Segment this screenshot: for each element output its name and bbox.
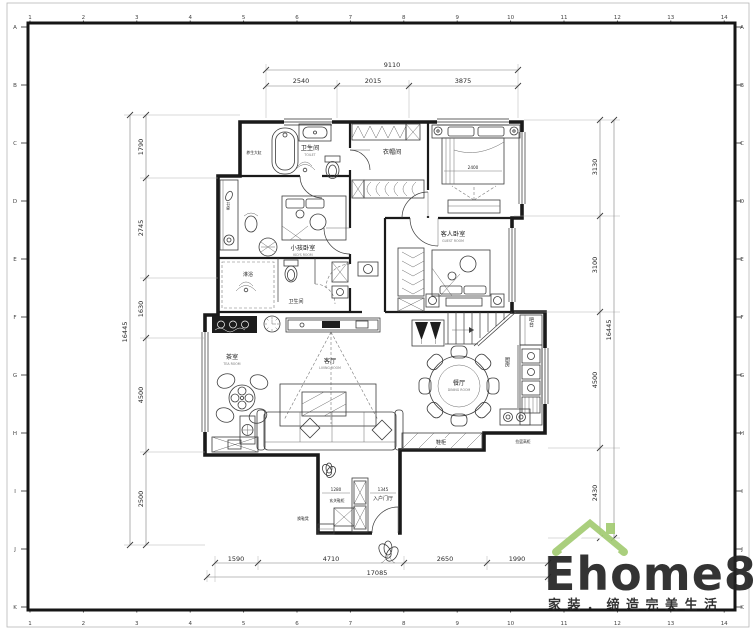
dim-label: 2540 bbox=[293, 77, 310, 85]
grid-col-label: 14 bbox=[721, 15, 728, 21]
annotation-entry-dim: 1345 bbox=[378, 487, 389, 492]
room-label-bar: 吧台 bbox=[528, 317, 534, 328]
window-living-left bbox=[201, 332, 209, 432]
grid-col-label: 4 bbox=[188, 621, 192, 627]
dim-label: 2430 bbox=[591, 485, 599, 502]
grid-row-label: G bbox=[740, 373, 744, 379]
grid-col-label: 5 bbox=[242, 15, 246, 21]
grid-row-label: J bbox=[13, 547, 16, 553]
grid-row-label: F bbox=[13, 315, 16, 321]
dim-label: 16445 bbox=[121, 322, 129, 343]
dim-label: 3130 bbox=[591, 159, 599, 176]
grid-col-label: 12 bbox=[614, 621, 621, 627]
grid-col-label: 13 bbox=[667, 621, 674, 627]
grid-col-label: 1 bbox=[28, 621, 32, 627]
grid-col-label: 9 bbox=[455, 621, 459, 627]
window-master-right bbox=[518, 132, 526, 204]
room-sublabel: LIVING ROOM bbox=[319, 366, 341, 370]
grid-col-label: 2 bbox=[82, 621, 86, 627]
room-label-dining-room: 餐厅 bbox=[453, 379, 465, 387]
room-label-tea-room: 茶室 bbox=[226, 353, 238, 361]
room-sublabel: GUEST ROOM bbox=[442, 239, 464, 243]
dim-label: 3875 bbox=[455, 77, 472, 85]
annotation-tall-cabinet: 拉篮高柜 bbox=[515, 439, 530, 444]
grid-col-label: 8 bbox=[402, 621, 406, 627]
grid-col-label: 9 bbox=[455, 15, 459, 21]
grid-row-label: H bbox=[740, 431, 744, 437]
grid-col-label: 7 bbox=[349, 15, 353, 21]
dim-label: 9110 bbox=[384, 61, 401, 69]
dim-label: 2015 bbox=[365, 77, 382, 85]
dim-label: 4500 bbox=[137, 387, 145, 404]
grid-col-label: 6 bbox=[295, 621, 299, 627]
dim-label: 16445 bbox=[605, 320, 613, 341]
grid-col-label: 4 bbox=[188, 15, 192, 21]
annotation-entry-dim: 1280 bbox=[331, 487, 342, 492]
room-label-kitchen: 厨房 bbox=[504, 357, 510, 368]
dim-label: 3100 bbox=[591, 257, 599, 274]
room-label-living-room: 客厅 bbox=[324, 357, 336, 365]
grid-col-label: 2 bbox=[82, 15, 86, 21]
room-label-shower: 淋浴 bbox=[243, 271, 253, 278]
grid-row-label: K bbox=[740, 605, 744, 611]
dim-label: 2650 bbox=[437, 555, 454, 563]
grid-row-label: C bbox=[740, 141, 744, 147]
grid-col-label: 14 bbox=[721, 621, 728, 627]
dim-label: 17085 bbox=[367, 569, 388, 577]
grid-row-label: C bbox=[13, 141, 17, 147]
annotation-health-tub: 养生大缸 bbox=[246, 150, 261, 155]
room-sublabel: DINING ROOM bbox=[448, 388, 471, 392]
annotation-bed-width: 2400 bbox=[468, 165, 479, 170]
dim-label: 1990 bbox=[509, 555, 526, 563]
annotation-shoe-bench: 换鞋凳 bbox=[297, 516, 309, 521]
dim-label: 4710 bbox=[323, 555, 340, 563]
dim-label: 2745 bbox=[137, 220, 145, 237]
room-label-guest-bedroom: 客人卧室 bbox=[441, 230, 466, 238]
room-sublabel: TEA ROOM bbox=[222, 362, 240, 366]
grid-col-label: 12 bbox=[614, 15, 621, 21]
grid-col-label: 3 bbox=[135, 15, 139, 21]
grid-col-label: 3 bbox=[135, 621, 139, 627]
logo-tagline-text: 家装．缔造完美生活 bbox=[548, 597, 724, 613]
room-label-kids-bedroom: 小孩卧室 bbox=[291, 244, 316, 252]
dim-label: 1590 bbox=[228, 555, 245, 563]
window-guest-right bbox=[508, 228, 516, 302]
grid-col-label: 6 bbox=[295, 15, 299, 21]
grid-col-label: 11 bbox=[561, 621, 568, 627]
room-sublabel: KID'S ROOM bbox=[293, 253, 313, 257]
grid-col-label: 11 bbox=[561, 15, 568, 21]
grid-row-label: A bbox=[740, 25, 744, 31]
grid-row-label: B bbox=[740, 83, 744, 89]
annotation-shoe-cabinet: 鞋柜 bbox=[436, 439, 446, 446]
room-label-entry: 入户门厅 bbox=[373, 495, 393, 502]
logo-brand-text: Ehome8 bbox=[544, 547, 756, 601]
grid-row-label: E bbox=[740, 257, 744, 263]
grid-row-label: K bbox=[13, 605, 17, 611]
grid-col-label: 5 bbox=[242, 621, 246, 627]
grid-row-label: F bbox=[740, 315, 743, 321]
dim-label: 1790 bbox=[137, 139, 145, 156]
grid-col-label: 10 bbox=[507, 621, 514, 627]
dim-label: 2500 bbox=[137, 491, 145, 508]
grid-row-label: D bbox=[13, 199, 17, 205]
room-label-bathroom-2: 卫生间 bbox=[288, 298, 303, 305]
annotation-desk: 书桌 bbox=[225, 202, 231, 211]
dim-label: 1630 bbox=[137, 301, 145, 318]
room-label-cloakroom: 衣帽间 bbox=[383, 148, 402, 156]
grid-row-label: G bbox=[13, 373, 17, 379]
annotation-entry-cabinet: 玄关鞋柜 bbox=[329, 498, 344, 503]
grid-row-label: A bbox=[13, 25, 17, 31]
grid-col-label: 13 bbox=[667, 15, 674, 21]
window-bath-top bbox=[284, 118, 332, 126]
grid-col-label: 8 bbox=[402, 15, 406, 21]
room-label-bathroom: 卫生间 bbox=[301, 144, 320, 152]
room-sublabel: TOILET bbox=[303, 153, 315, 157]
grid-row-label: B bbox=[13, 83, 17, 89]
grid-row-label: E bbox=[13, 257, 17, 263]
wall-clock bbox=[264, 316, 280, 332]
decor-cabinet bbox=[212, 316, 257, 333]
floor-plan-sheet: 11223344556677889910101111121213131414AA… bbox=[0, 0, 756, 630]
grid-col-label: 1 bbox=[28, 15, 32, 21]
grid-col-label: 7 bbox=[349, 621, 353, 627]
grid-col-label: 10 bbox=[507, 15, 514, 21]
grid-row-label: D bbox=[740, 199, 744, 205]
grid-row-label: H bbox=[13, 431, 17, 437]
dim-label: 4500 bbox=[591, 372, 599, 389]
